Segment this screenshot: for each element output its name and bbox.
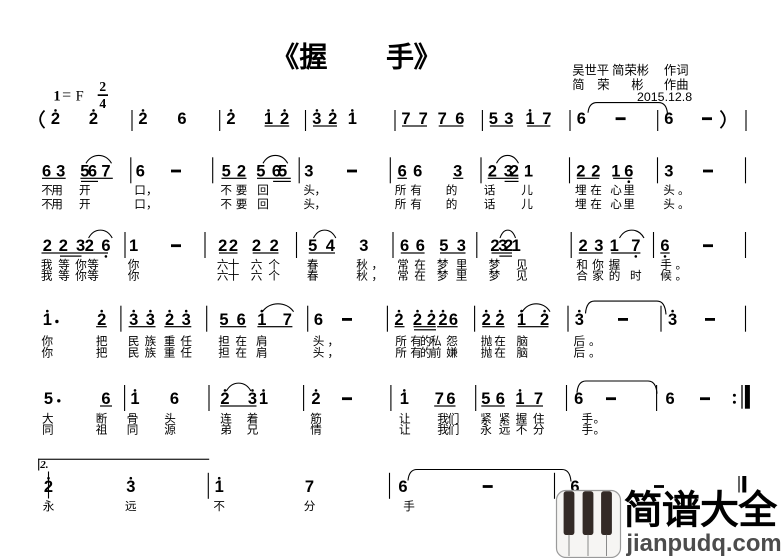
svg-text:梦: 梦 [437,270,449,283]
svg-text:。: 。 [594,424,606,437]
svg-text:回: 回 [257,184,269,197]
svg-text:1: 1 [130,390,139,408]
svg-text:，: ， [372,270,384,283]
svg-text:F: F [76,88,84,104]
svg-text:3: 3 [575,311,584,329]
svg-text:心: 心 [610,198,622,211]
svg-text:4: 4 [99,96,106,111]
svg-text:3: 3 [359,237,368,255]
svg-text:《: 《 [271,42,299,74]
svg-text:6: 6 [413,163,422,181]
svg-text:民: 民 [128,346,140,359]
svg-text:6: 6 [574,390,583,408]
svg-text:们: 们 [448,423,460,437]
svg-text:个: 个 [268,270,280,283]
svg-text:3: 3 [664,163,673,181]
svg-text:前: 前 [430,345,442,359]
svg-text:1: 1 [215,478,224,496]
svg-text:头: 头 [663,184,675,197]
svg-text:见: 见 [516,270,528,283]
svg-text:在: 在 [414,270,426,283]
svg-text:6: 6 [177,110,186,128]
svg-text:2015.12.8: 2015.12.8 [637,90,692,104]
svg-text:，: ， [146,198,158,211]
svg-text:，: ， [146,184,158,197]
svg-text:jianpudq.com: jianpudq.com [625,530,781,557]
svg-text:等: 等 [58,269,70,283]
svg-text:2: 2 [226,110,235,128]
svg-text:回: 回 [257,198,269,211]
svg-text:1: 1 [524,163,533,181]
svg-text:我: 我 [41,270,53,283]
svg-text:用: 用 [51,184,63,197]
svg-text:任: 任 [180,346,192,359]
svg-text:远: 远 [125,500,137,513]
svg-text:远: 远 [499,424,511,437]
svg-text:头: 头 [303,198,315,211]
svg-text:手: 手 [581,423,593,437]
svg-text:3: 3 [304,163,313,181]
svg-text:开: 开 [79,184,91,197]
svg-text:不: 不 [516,424,528,437]
svg-text:1: 1 [400,390,409,408]
svg-text:开: 开 [79,198,91,211]
svg-text:你: 你 [41,346,53,359]
svg-text:候: 候 [660,269,672,283]
svg-text:。: 。 [678,198,690,211]
svg-text:里: 里 [623,184,635,197]
svg-text:让: 让 [399,424,411,437]
svg-text:作词: 作词 [664,64,689,78]
svg-text:荣: 荣 [597,78,609,92]
svg-text:=: = [62,87,71,104]
svg-text:要: 要 [236,184,248,197]
svg-text:1: 1 [259,390,268,408]
svg-text:握: 握 [299,42,327,74]
svg-text:所: 所 [395,346,407,359]
svg-text:埋: 埋 [575,184,587,197]
svg-text:把: 把 [96,345,108,359]
svg-text:在: 在 [235,346,247,359]
svg-text:十: 十 [228,269,240,283]
svg-text:手: 手 [386,42,414,74]
svg-text:6: 6 [136,163,145,181]
svg-text:1: 1 [129,237,138,255]
svg-text:头: 头 [313,346,325,359]
svg-text:头: 头 [303,184,315,197]
svg-text:后: 后 [573,346,585,359]
svg-text:同: 同 [127,424,139,437]
svg-text:不: 不 [220,198,232,211]
svg-text:的: 的 [446,183,458,197]
svg-text:埋: 埋 [575,198,587,211]
svg-text:6: 6 [170,390,179,408]
svg-text:情: 情 [310,424,322,437]
svg-text:常: 常 [397,270,409,283]
svg-text:六: 六 [251,270,263,283]
svg-text:用: 用 [51,198,63,211]
svg-text:2: 2 [99,79,106,94]
svg-text:所: 所 [395,198,407,211]
svg-text:头: 头 [663,198,675,211]
svg-text:2: 2 [89,110,98,128]
svg-text:时: 时 [630,270,642,283]
svg-text:》: 》 [414,42,442,74]
svg-text:嫌: 嫌 [446,345,458,359]
svg-text:。: 。 [676,270,688,283]
svg-text:祖: 祖 [96,423,108,437]
svg-text:脑: 脑 [516,345,528,359]
svg-text:，: ， [328,346,340,359]
svg-text:有: 有 [410,183,422,197]
svg-text:话: 话 [484,198,496,211]
svg-text:2: 2 [44,478,53,496]
svg-text:等: 等 [87,269,99,283]
svg-text:分: 分 [533,424,545,437]
svg-text:同: 同 [42,424,54,437]
svg-text:兄: 兄 [247,424,259,437]
svg-text:1: 1 [512,237,521,255]
svg-text:春: 春 [307,270,319,283]
svg-text:担: 担 [218,345,230,359]
svg-text:合: 合 [576,269,588,283]
svg-text:6: 6 [577,110,586,128]
svg-text:分: 分 [304,500,316,513]
svg-text:重: 重 [164,345,176,359]
svg-text:7: 7 [305,478,314,496]
svg-text:族: 族 [145,345,157,359]
svg-text:的: 的 [446,197,458,211]
svg-text:在: 在 [590,198,602,211]
svg-text:在: 在 [590,184,602,197]
svg-text:要: 要 [236,198,248,211]
svg-text:家: 家 [592,269,604,283]
svg-text:心: 心 [610,184,622,197]
svg-text:口: 口 [134,184,146,197]
svg-text:在: 在 [494,346,506,359]
svg-text:你: 你 [128,270,140,283]
svg-text:弟: 弟 [220,424,232,437]
svg-text:所: 所 [395,184,407,197]
svg-text:简: 简 [572,78,584,92]
svg-text:不: 不 [213,500,225,513]
svg-text:2: 2 [51,110,60,128]
svg-text:手: 手 [403,499,415,513]
svg-text:2: 2 [311,390,320,408]
svg-text:秋: 秋 [356,269,368,283]
svg-text:口: 口 [134,198,146,211]
svg-text:不: 不 [220,184,232,197]
svg-text:，: ， [315,184,327,197]
svg-text:永: 永 [43,499,55,513]
svg-text:，: ， [315,198,327,211]
svg-text:儿: 儿 [521,198,533,211]
svg-text:肩: 肩 [256,345,268,359]
svg-text:梦: 梦 [489,270,501,283]
svg-text:3: 3 [126,478,135,496]
svg-text:有: 有 [410,197,422,211]
svg-text:6: 6 [398,478,407,496]
svg-text:1: 1 [43,311,52,329]
svg-text:2.: 2. [39,459,48,471]
svg-text:的: 的 [609,269,621,283]
svg-text:源: 源 [164,423,176,437]
svg-text:6: 6 [314,311,323,329]
svg-text:儿: 儿 [521,184,533,197]
svg-text:简谱大全: 简谱大全 [624,489,779,533]
svg-text:。: 。 [589,346,601,359]
svg-text:。: 。 [678,184,690,197]
svg-text:1: 1 [53,88,60,104]
svg-text:话: 话 [484,184,496,197]
svg-text:2: 2 [138,110,147,128]
svg-text:里: 里 [456,270,468,283]
svg-text:3: 3 [668,311,677,329]
svg-text:里: 里 [623,198,635,211]
svg-text:6: 6 [666,390,675,408]
svg-text:6: 6 [664,110,673,128]
svg-text:你: 你 [75,270,87,283]
svg-text:抛: 抛 [481,345,493,359]
svg-text:吴世平 简荣彬: 吴世平 简荣彬 [572,64,649,78]
svg-text:5: 5 [44,390,53,408]
svg-text:1: 1 [348,110,357,128]
svg-text:永: 永 [480,423,492,437]
